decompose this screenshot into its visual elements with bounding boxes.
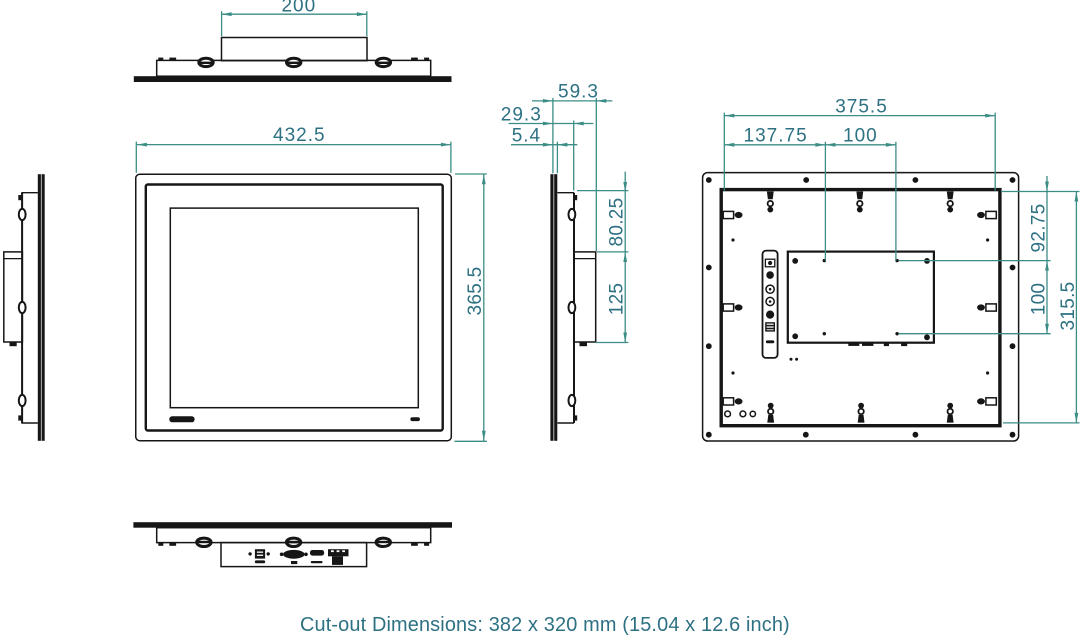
svg-text:365.5: 365.5 — [465, 266, 486, 315]
svg-text:375.5: 375.5 — [835, 97, 888, 118]
svg-text:432.5: 432.5 — [273, 125, 326, 146]
svg-text:100: 100 — [843, 125, 878, 146]
svg-text:315.5: 315.5 — [1058, 281, 1079, 330]
svg-text:137.75: 137.75 — [744, 125, 808, 146]
svg-text:92.75: 92.75 — [1028, 203, 1049, 252]
svg-text:200: 200 — [281, 0, 316, 16]
svg-text:80.25: 80.25 — [606, 197, 627, 246]
svg-text:100: 100 — [1028, 283, 1049, 316]
svg-text:59.3: 59.3 — [558, 82, 599, 103]
svg-text:5.4: 5.4 — [512, 126, 541, 147]
svg-text:125: 125 — [606, 283, 627, 316]
svg-text:Cut-out Dimensions: 382 x 320: Cut-out Dimensions: 382 x 320 mm (15.04 … — [300, 614, 790, 636]
svg-text:29.3: 29.3 — [501, 104, 542, 125]
